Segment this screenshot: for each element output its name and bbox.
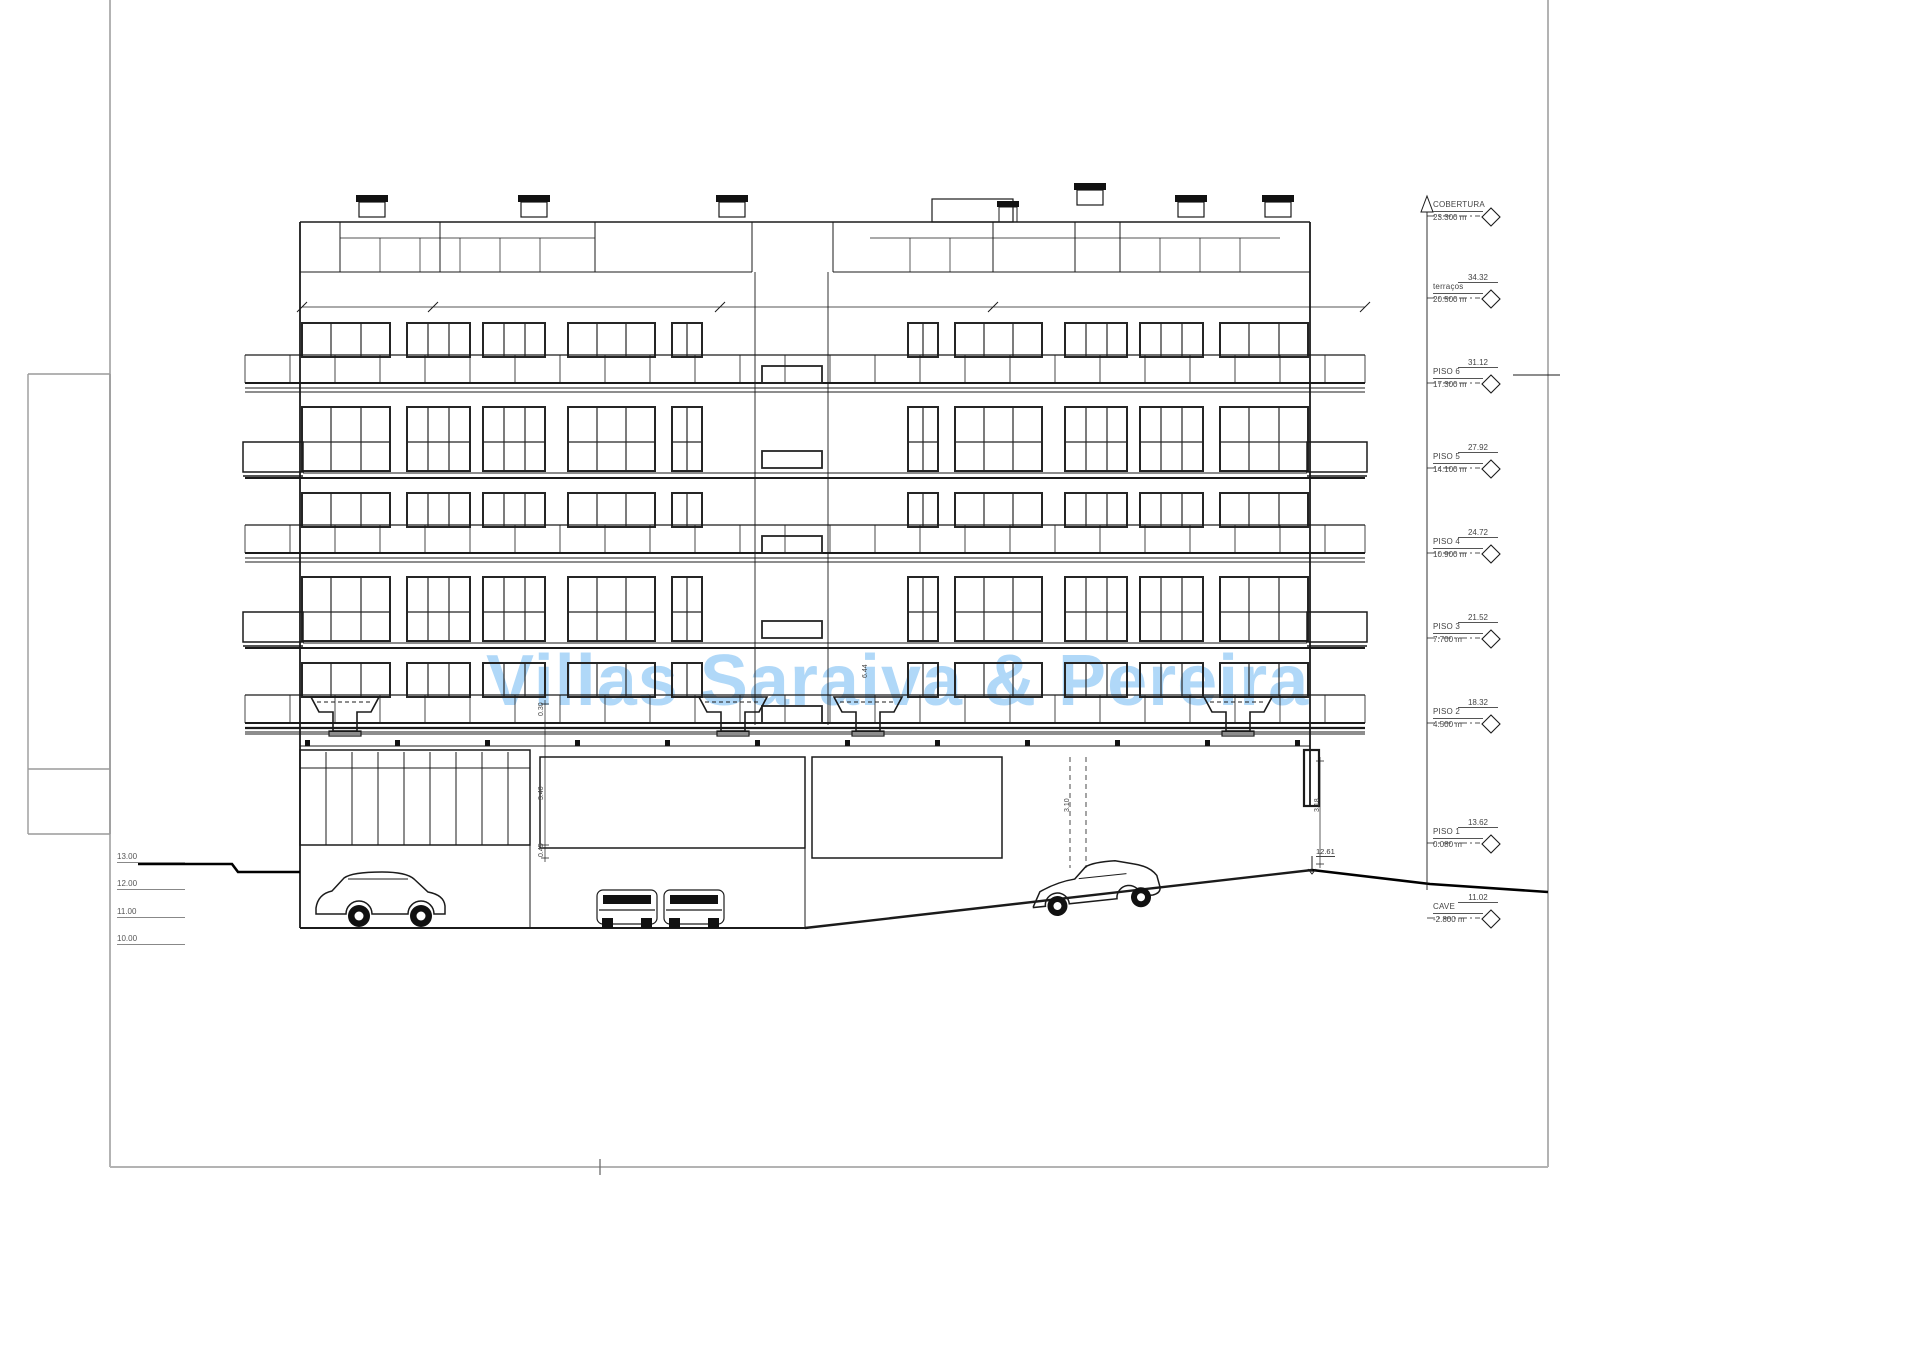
car-sedan	[1030, 856, 1162, 918]
drawing-page: { "page": {"background": "#ffffff", "wat…	[0, 0, 1920, 1357]
car-suv	[316, 872, 445, 927]
datum-arrow-icon	[1421, 196, 1433, 212]
central-strip	[755, 272, 828, 725]
building-facade	[243, 183, 1370, 928]
penthouse-level	[297, 183, 1370, 312]
car-parked-1	[597, 890, 657, 928]
level-marker-column	[1421, 196, 1560, 928]
sheet-frame	[28, 0, 1548, 1175]
planters	[311, 697, 1272, 736]
level-diamond-icons	[1482, 208, 1500, 928]
terrain-line	[138, 864, 1548, 892]
building-elevation-drawing	[0, 0, 1920, 1357]
spot-elevation-tick	[1308, 856, 1316, 874]
car-parked-2	[664, 890, 724, 928]
ground-floor	[245, 700, 1365, 868]
